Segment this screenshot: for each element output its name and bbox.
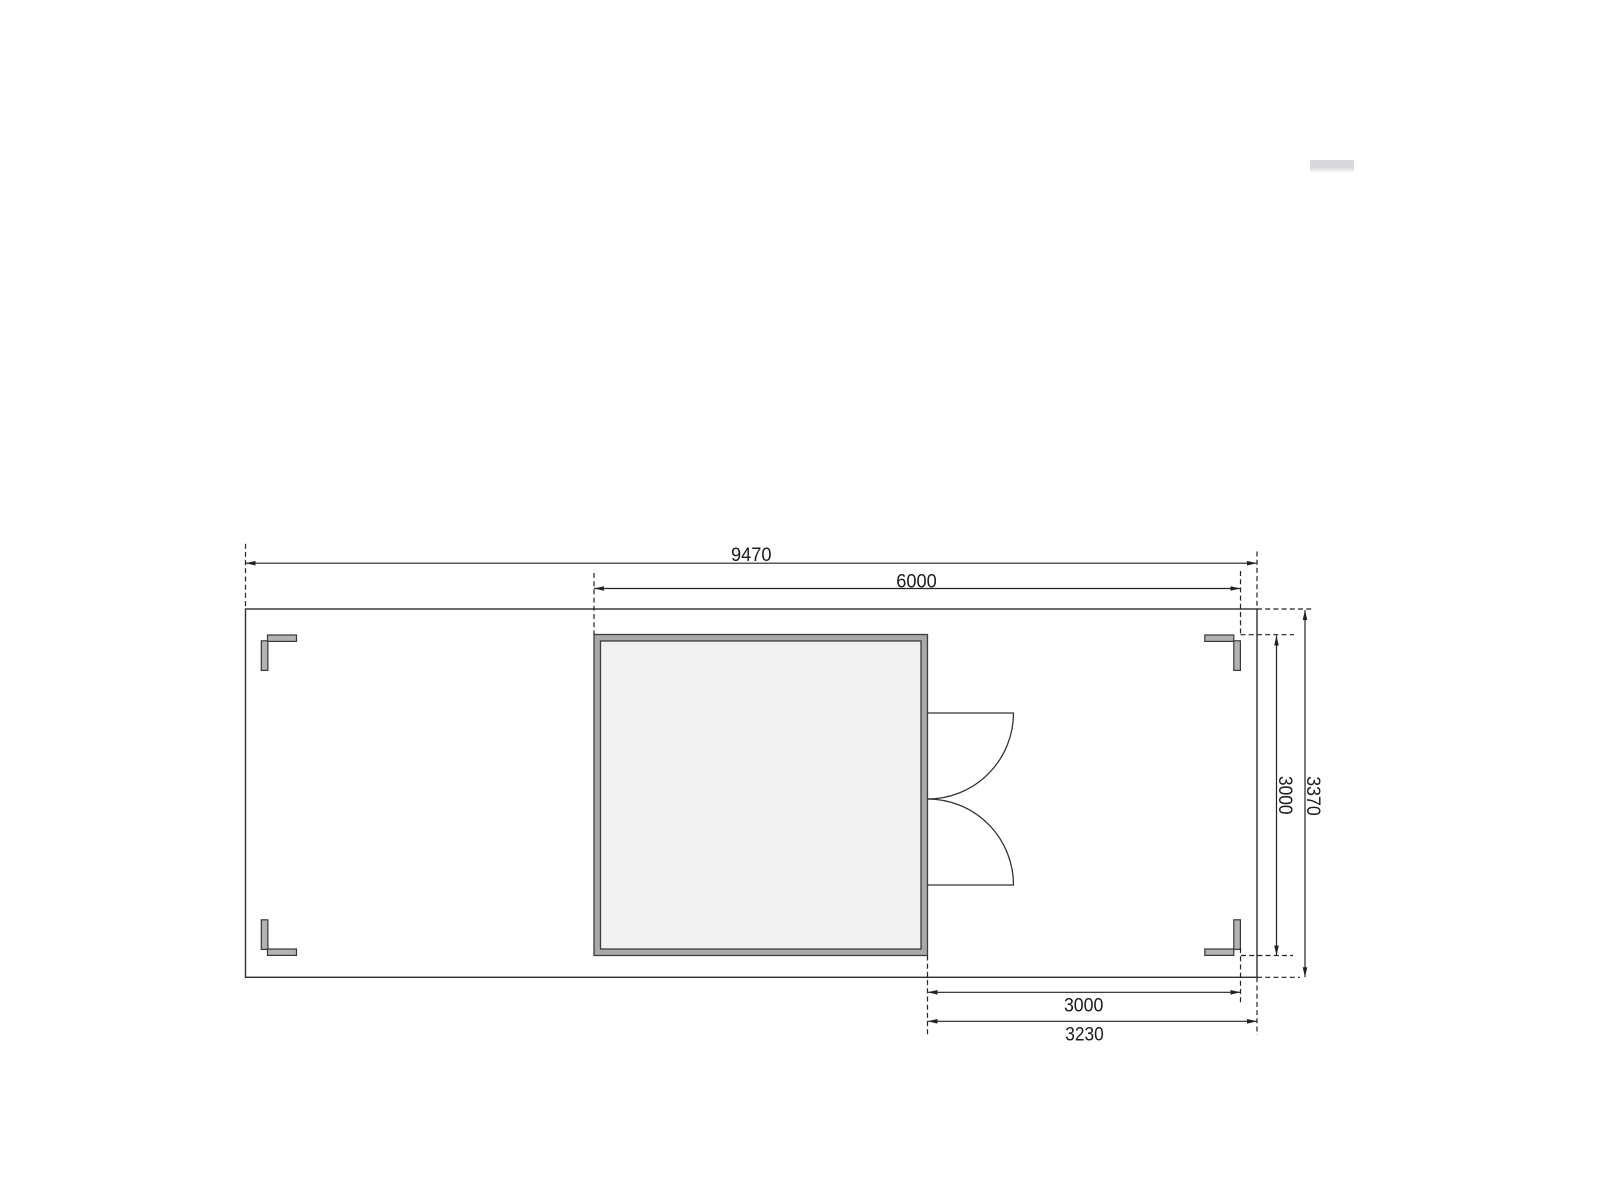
svg-text:3230: 3230	[1065, 1024, 1104, 1046]
svg-text:6000: 6000	[896, 570, 937, 592]
svg-text:3370: 3370	[1302, 776, 1324, 816]
svg-text:3000: 3000	[1274, 776, 1296, 815]
svg-text:9470: 9470	[731, 544, 772, 566]
svg-text:3000: 3000	[1064, 994, 1104, 1016]
